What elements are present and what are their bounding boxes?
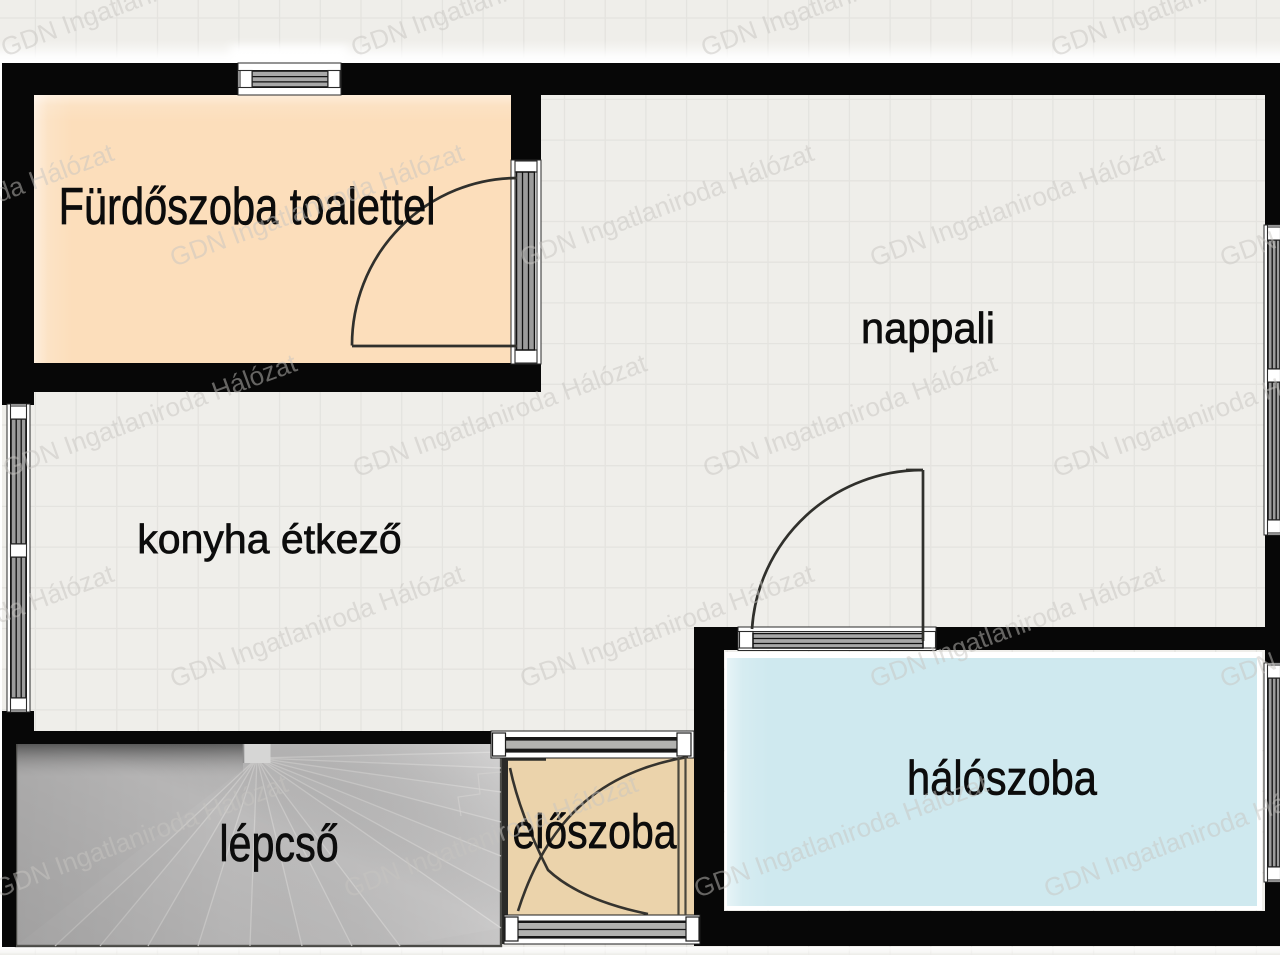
svg-text:nappali: nappali [861,304,995,353]
svg-text:konyha étkező: konyha étkező [137,516,401,562]
svg-text:lépcső: lépcső [219,815,338,872]
